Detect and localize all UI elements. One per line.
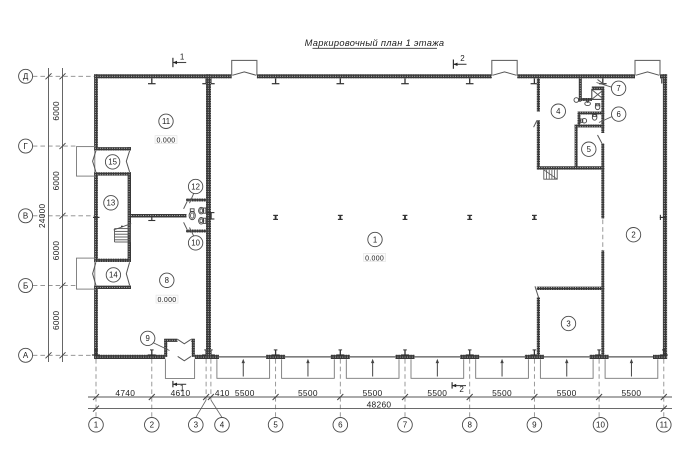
svg-text:Б: Б [23, 281, 28, 290]
svg-text:6000: 6000 [52, 310, 61, 330]
svg-text:6: 6 [617, 110, 621, 119]
svg-text:10: 10 [191, 239, 200, 248]
svg-text:9: 9 [532, 421, 537, 430]
svg-text:7: 7 [403, 421, 408, 430]
svg-text:5500: 5500 [363, 388, 383, 398]
svg-text:13: 13 [107, 199, 116, 208]
svg-text:Д: Д [23, 72, 29, 81]
svg-text:5: 5 [587, 145, 592, 154]
svg-text:4: 4 [556, 107, 561, 116]
svg-text:48260: 48260 [367, 399, 392, 409]
svg-text:1: 1 [94, 421, 99, 430]
svg-text:5500: 5500 [298, 388, 318, 398]
svg-text:2: 2 [150, 421, 155, 430]
svg-text:2: 2 [459, 385, 464, 394]
svg-text:5: 5 [273, 421, 278, 430]
svg-text:4: 4 [220, 421, 225, 430]
svg-text:24000: 24000 [38, 204, 47, 228]
svg-text:3: 3 [194, 421, 199, 430]
svg-text:2: 2 [460, 54, 465, 63]
svg-text:10: 10 [596, 421, 605, 430]
svg-text:0.000: 0.000 [365, 255, 384, 262]
svg-text:2: 2 [631, 231, 635, 240]
svg-text:А: А [23, 351, 29, 360]
svg-text:11: 11 [162, 117, 170, 126]
svg-text:1: 1 [373, 235, 377, 244]
svg-text:8: 8 [165, 276, 169, 285]
svg-text:5500: 5500 [235, 388, 255, 398]
svg-text:Г: Г [23, 142, 28, 151]
svg-text:8: 8 [467, 421, 472, 430]
svg-text:0.000: 0.000 [157, 297, 176, 304]
svg-text:3: 3 [566, 319, 570, 328]
svg-text:14: 14 [109, 271, 118, 280]
svg-text:В: В [23, 212, 28, 221]
svg-text:410: 410 [215, 388, 230, 398]
svg-text:5500: 5500 [492, 388, 512, 398]
svg-text:6000: 6000 [52, 241, 61, 261]
svg-text:1: 1 [180, 52, 185, 61]
svg-text:6: 6 [338, 421, 343, 430]
svg-text:9: 9 [146, 334, 150, 343]
svg-text:15: 15 [108, 158, 117, 167]
svg-text:0.000: 0.000 [156, 138, 175, 145]
svg-text:7: 7 [616, 84, 620, 93]
svg-text:5500: 5500 [427, 388, 447, 398]
svg-text:Маркировочный план 1 этажа: Маркировочный план 1 этажа [305, 38, 445, 48]
svg-text:5500: 5500 [621, 388, 641, 398]
svg-text:4740: 4740 [115, 388, 135, 398]
svg-text:6000: 6000 [52, 171, 61, 191]
svg-text:11: 11 [660, 421, 669, 430]
svg-text:6000: 6000 [52, 101, 61, 121]
svg-text:1: 1 [180, 384, 185, 393]
svg-text:5500: 5500 [557, 388, 577, 398]
svg-text:12: 12 [191, 182, 200, 191]
